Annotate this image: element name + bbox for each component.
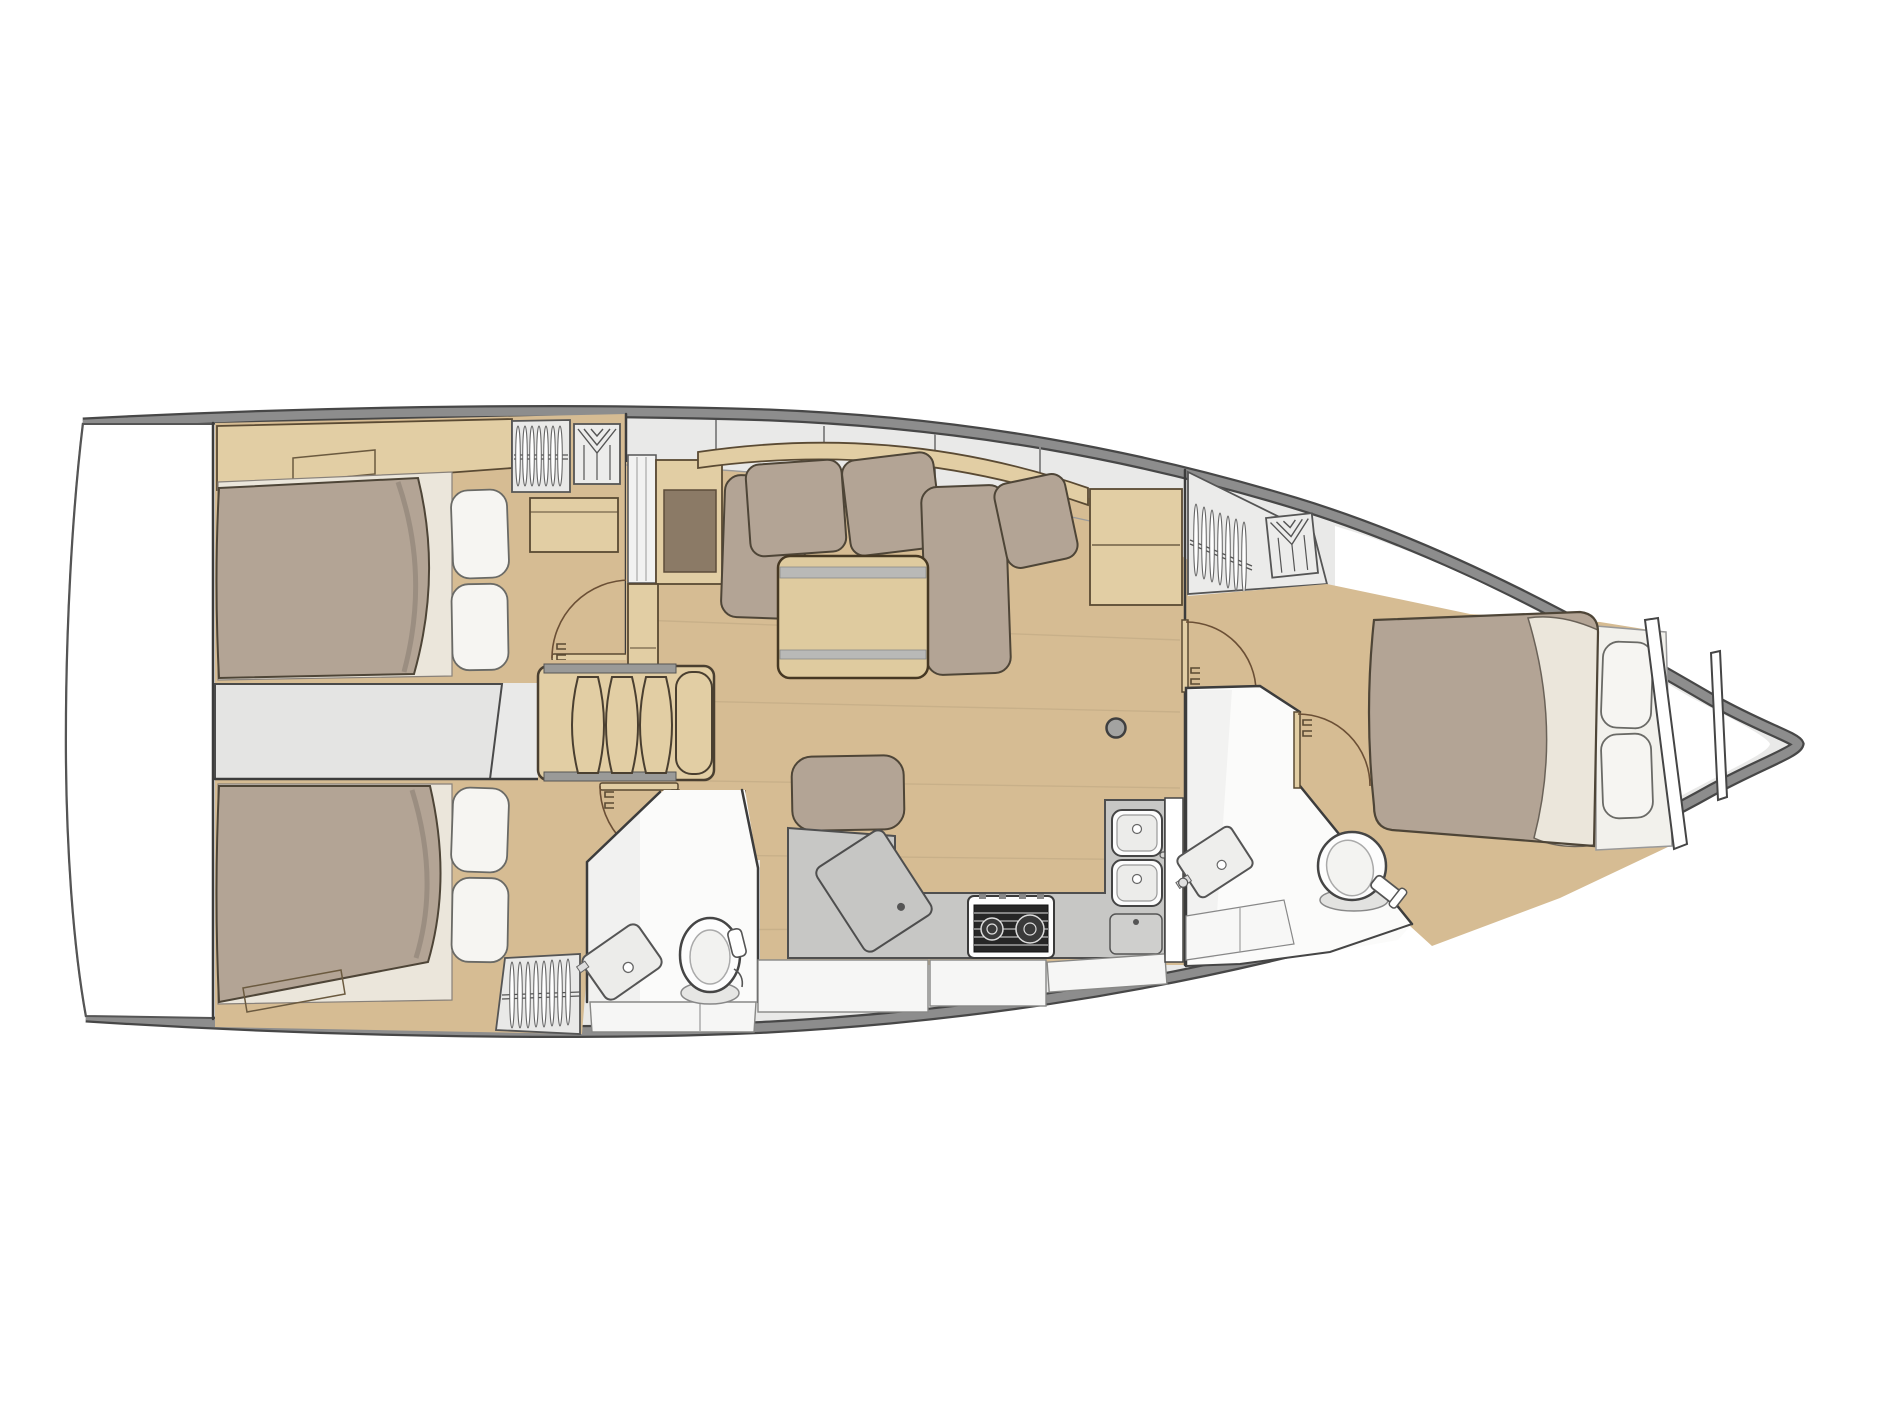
- pillow-icon: [451, 584, 508, 671]
- cabin-door: [1182, 620, 1188, 692]
- shirt-locker-icon: [1266, 513, 1318, 577]
- stove-2-burner-icon: [968, 894, 1054, 958]
- toilet-icon: [680, 918, 747, 1004]
- brown-panel: [664, 490, 716, 572]
- hull-locker: [930, 960, 1046, 1006]
- locker-knob: [1133, 919, 1139, 925]
- table-leaf-hinge: [780, 567, 926, 578]
- head-door: [1294, 712, 1300, 788]
- table-leaf-hinge: [780, 650, 926, 659]
- engine-compartment: [215, 684, 502, 779]
- starboard-cabin-door: [600, 783, 678, 790]
- sofa-cushion-icon: [745, 459, 847, 557]
- pillow-icon: [451, 878, 508, 963]
- aft-cabin-port: [215, 414, 630, 683]
- cabinet: [530, 498, 618, 552]
- floor-plan-canvas: [0, 0, 1900, 1425]
- hanger-rail-icon: [496, 954, 580, 1034]
- bed-double-icon: [217, 478, 430, 678]
- pillow-icon: [1601, 733, 1654, 819]
- ottoman: [791, 755, 904, 831]
- hanger-rail-icon: [512, 420, 570, 492]
- pillow-icon: [1601, 641, 1654, 729]
- floor-hatch-icon: [1107, 719, 1126, 738]
- steps-icon: [606, 677, 638, 773]
- settee-end-cabinet: [1090, 489, 1182, 605]
- pillow-icon: [451, 787, 510, 873]
- steps-icon: [640, 677, 672, 773]
- swim-platform: [66, 424, 213, 1018]
- pantry-unit: [628, 455, 656, 583]
- steps-landing: [676, 672, 712, 774]
- steps-icon: [572, 677, 604, 773]
- yacht-floor-plan: [0, 0, 1900, 1425]
- hull-locker: [758, 960, 928, 1012]
- pillow-icon: [450, 489, 509, 579]
- shirt-locker-icon: [574, 424, 620, 484]
- companionway-steps: [538, 664, 714, 781]
- steps-rail: [544, 664, 676, 673]
- head-lockers: [590, 1002, 756, 1032]
